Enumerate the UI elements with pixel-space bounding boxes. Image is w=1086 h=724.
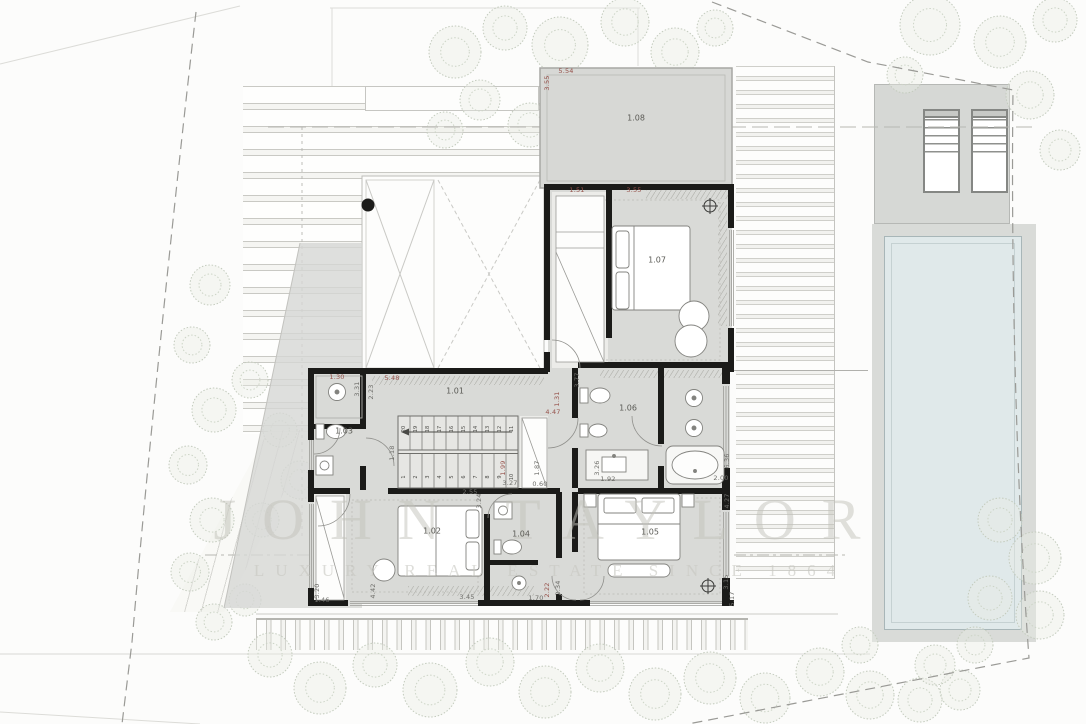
column xyxy=(362,199,375,212)
bed-1-07 xyxy=(612,226,690,310)
tree xyxy=(1009,532,1061,584)
wardrobe-1-07 xyxy=(556,196,604,362)
tree xyxy=(232,362,268,398)
tree xyxy=(978,498,1022,542)
staircase xyxy=(398,416,518,488)
floor-plan-drawing xyxy=(0,0,1086,724)
closet-hall xyxy=(522,418,547,488)
tree xyxy=(629,668,681,720)
tree xyxy=(519,666,571,718)
tree xyxy=(846,671,894,719)
tree xyxy=(684,652,736,704)
bathtub xyxy=(666,446,724,484)
tree xyxy=(429,26,481,78)
shower-drain-1-04 xyxy=(512,576,526,590)
tree xyxy=(740,673,790,723)
tree xyxy=(1016,591,1064,639)
toilet-1-04 xyxy=(494,540,522,554)
tree xyxy=(248,633,292,677)
wardrobe-1-02 xyxy=(316,496,344,600)
tree xyxy=(576,644,624,692)
toilet-1-06 xyxy=(580,388,610,403)
tree xyxy=(532,17,588,73)
tree xyxy=(190,498,234,542)
sink-1-03 xyxy=(316,456,333,475)
tree xyxy=(968,576,1012,620)
tree xyxy=(957,627,993,663)
tree xyxy=(353,643,397,687)
tree xyxy=(887,57,923,93)
tree xyxy=(174,327,210,363)
tree xyxy=(466,638,514,686)
tree xyxy=(601,0,649,46)
terrace-room xyxy=(540,68,732,188)
tree xyxy=(427,112,463,148)
tree xyxy=(483,6,527,50)
tree xyxy=(190,265,230,305)
tree xyxy=(974,16,1026,68)
toilet-1-03 xyxy=(316,424,346,439)
tree xyxy=(796,648,844,696)
sink-1-04 xyxy=(494,502,512,519)
tree xyxy=(697,10,733,46)
tree xyxy=(294,662,346,714)
vanity-1-06 xyxy=(586,450,648,480)
tree xyxy=(403,663,457,717)
void-area xyxy=(362,176,545,372)
site-plan: JOHN TAYLOR LUXURY REAL ESTATE SINCE 186… xyxy=(0,0,1086,724)
tree xyxy=(842,627,878,663)
tree xyxy=(1033,0,1077,42)
tree xyxy=(196,604,232,640)
tree xyxy=(460,80,500,120)
bidet-1-06 xyxy=(580,424,607,437)
tree xyxy=(169,446,207,484)
tree xyxy=(171,553,209,591)
tree xyxy=(192,388,236,432)
tree xyxy=(1040,130,1080,170)
